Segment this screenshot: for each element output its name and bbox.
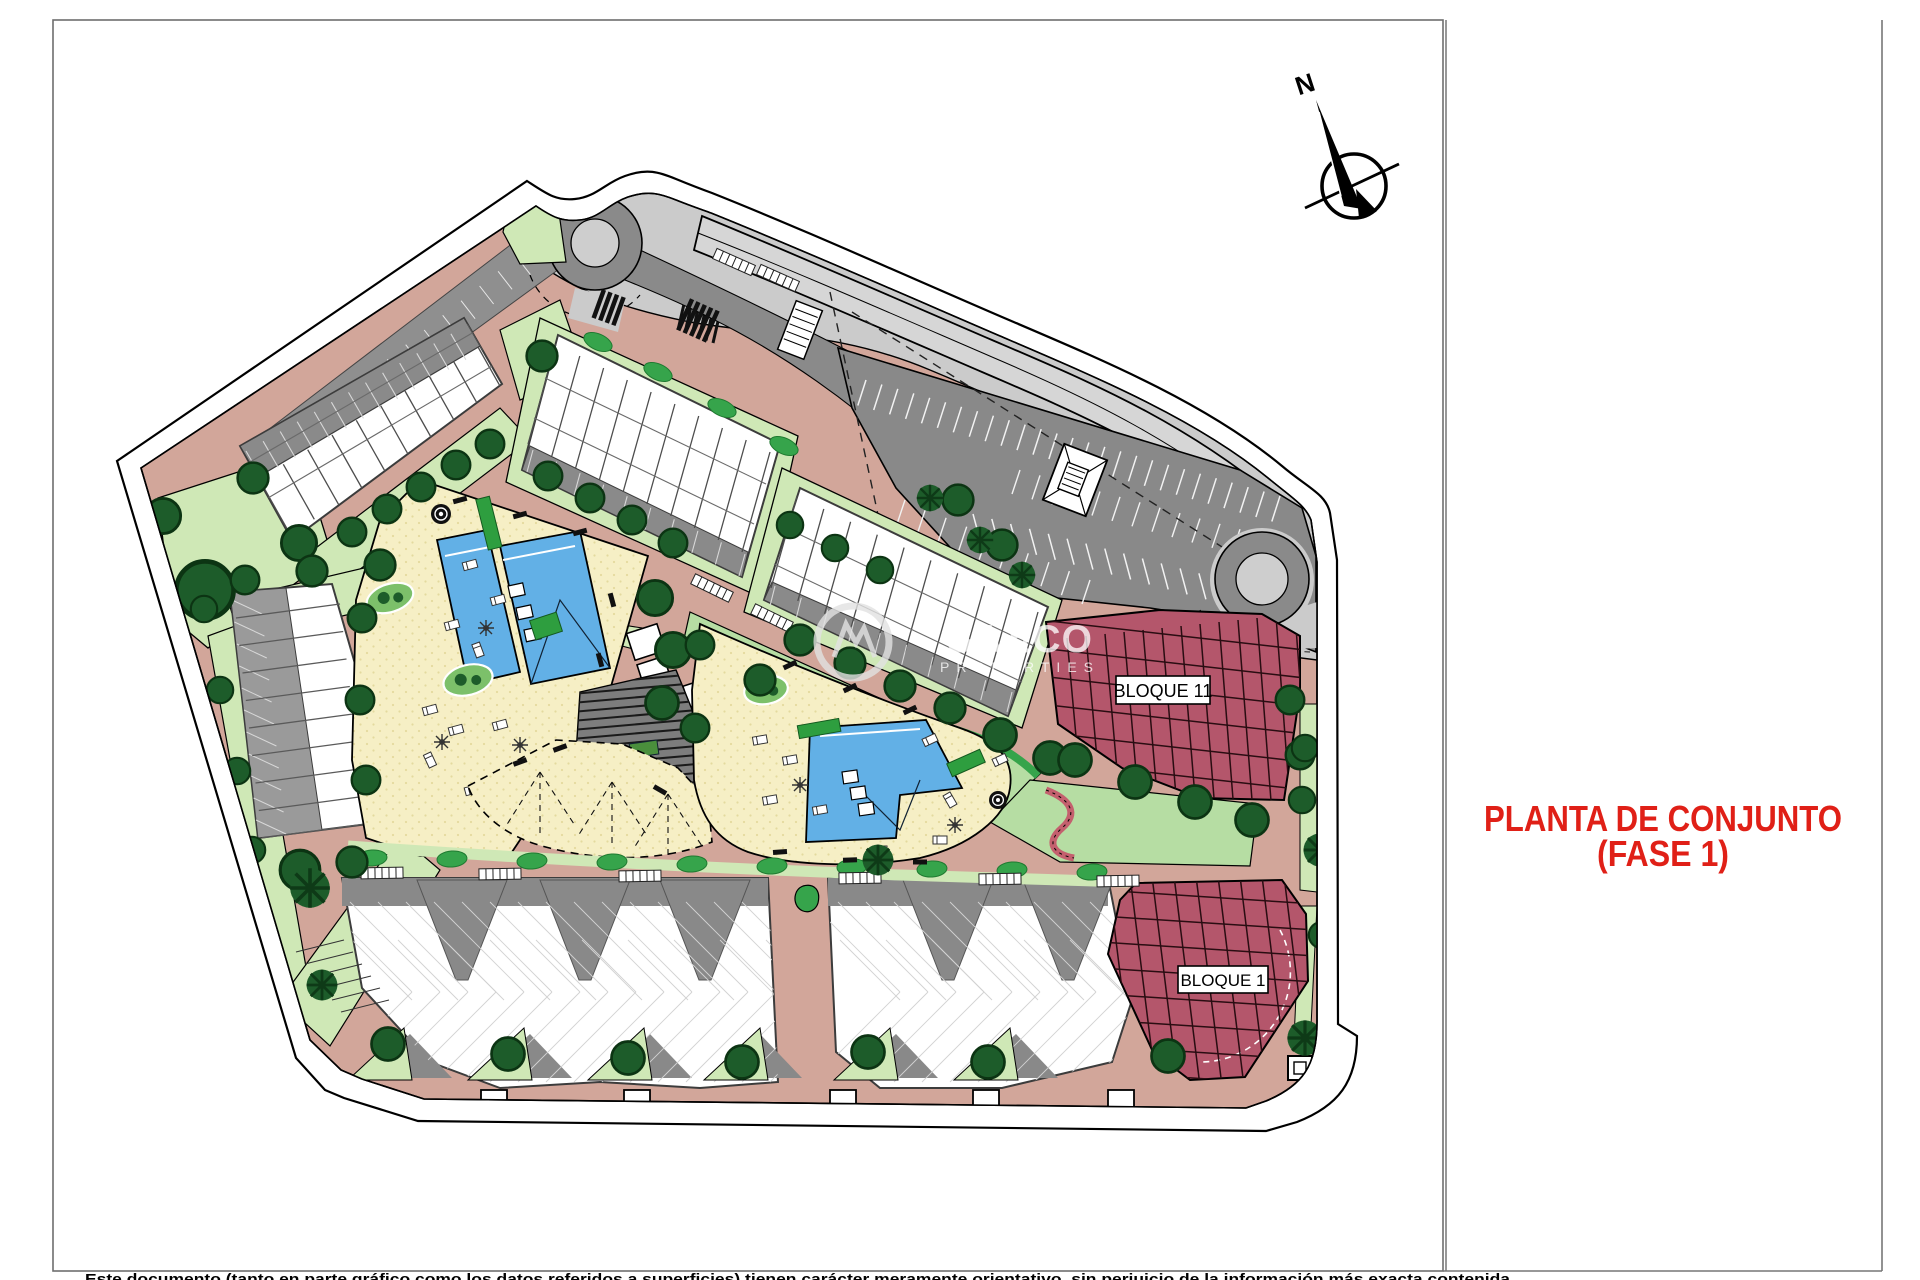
- svg-text:PROPERTIES: PROPERTIES: [940, 659, 1100, 675]
- svg-text:SA&CO: SA&CO: [947, 618, 1093, 661]
- svg-text:Este documento (tanto en parte: Este documento (tanto en parte gráfico c…: [85, 1271, 1511, 1280]
- svg-text:BLOQUE 1: BLOQUE 1: [1180, 971, 1265, 990]
- svg-text:BLOQUE 11: BLOQUE 11: [1114, 681, 1213, 701]
- svg-text:(FASE 1): (FASE 1): [1597, 833, 1729, 874]
